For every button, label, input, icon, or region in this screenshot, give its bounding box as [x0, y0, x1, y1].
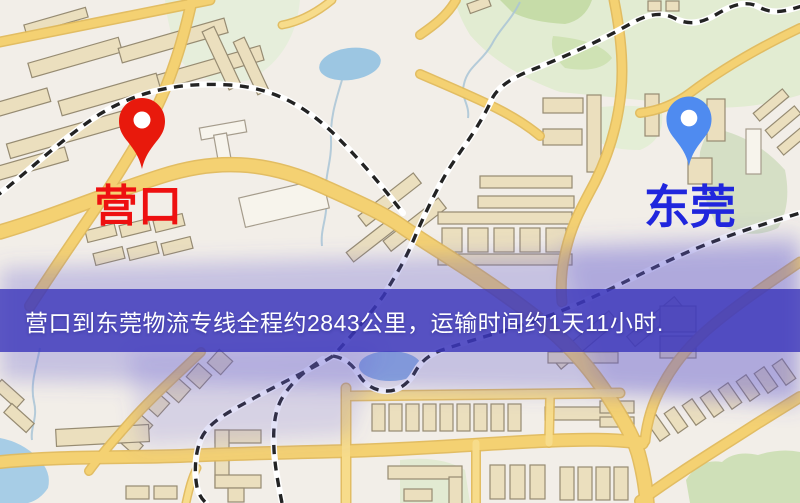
map-shape: [449, 477, 462, 503]
map-shape: [596, 467, 610, 500]
map-shape: [746, 129, 761, 174]
map-shape: [406, 404, 419, 431]
map-shape: [648, 1, 661, 11]
destination-label: 东莞: [644, 182, 736, 233]
map-shape: [520, 228, 540, 252]
map-screenshot: 营口 东莞 营口到东莞物流专线全程约2843公里，运输时间约1天11小时.: [0, 0, 800, 503]
origin-pin-hole: [134, 112, 151, 129]
map-shape: [510, 465, 525, 499]
map-shape: [474, 404, 487, 431]
map-shape: [372, 404, 385, 431]
map-shape: [614, 467, 628, 500]
map-shape: [560, 467, 574, 500]
map-shape: [389, 404, 402, 431]
map-shape: [530, 465, 545, 499]
map-shape: [478, 196, 574, 208]
map-shape: [126, 486, 149, 499]
destination-pin-hole: [681, 110, 698, 127]
map-shape: [543, 129, 582, 145]
map-shape: [549, 397, 550, 443]
map-shape: [688, 158, 712, 184]
map-shape: [468, 228, 488, 252]
map-shape: [130, 344, 380, 446]
map-shape: [480, 176, 572, 188]
map-shape: [666, 1, 679, 11]
map-shape: [423, 404, 436, 431]
map-shape: [228, 488, 244, 502]
map-shape: [438, 212, 572, 224]
map-shape: [578, 467, 592, 500]
map-shape: [543, 98, 583, 113]
route-summary-text: 营口到东莞物流专线全程约2843公里，运输时间约1天11小时.: [0, 304, 664, 338]
map-shape: [154, 486, 177, 499]
map-shape: [404, 489, 432, 501]
info-banner: 营口到东莞物流专线全程约2843公里，运输时间约1天11小时.: [0, 289, 800, 352]
map-shape: [440, 404, 453, 431]
map-shape: [490, 465, 505, 499]
map-shape: [491, 404, 504, 431]
map-shape: [508, 404, 521, 431]
map-shape: [457, 404, 470, 431]
map-canvas[interactable]: 营口 东莞: [0, 0, 800, 503]
map-shape: [494, 228, 514, 252]
origin-label: 营口: [94, 182, 182, 231]
map-shape: [215, 475, 261, 488]
